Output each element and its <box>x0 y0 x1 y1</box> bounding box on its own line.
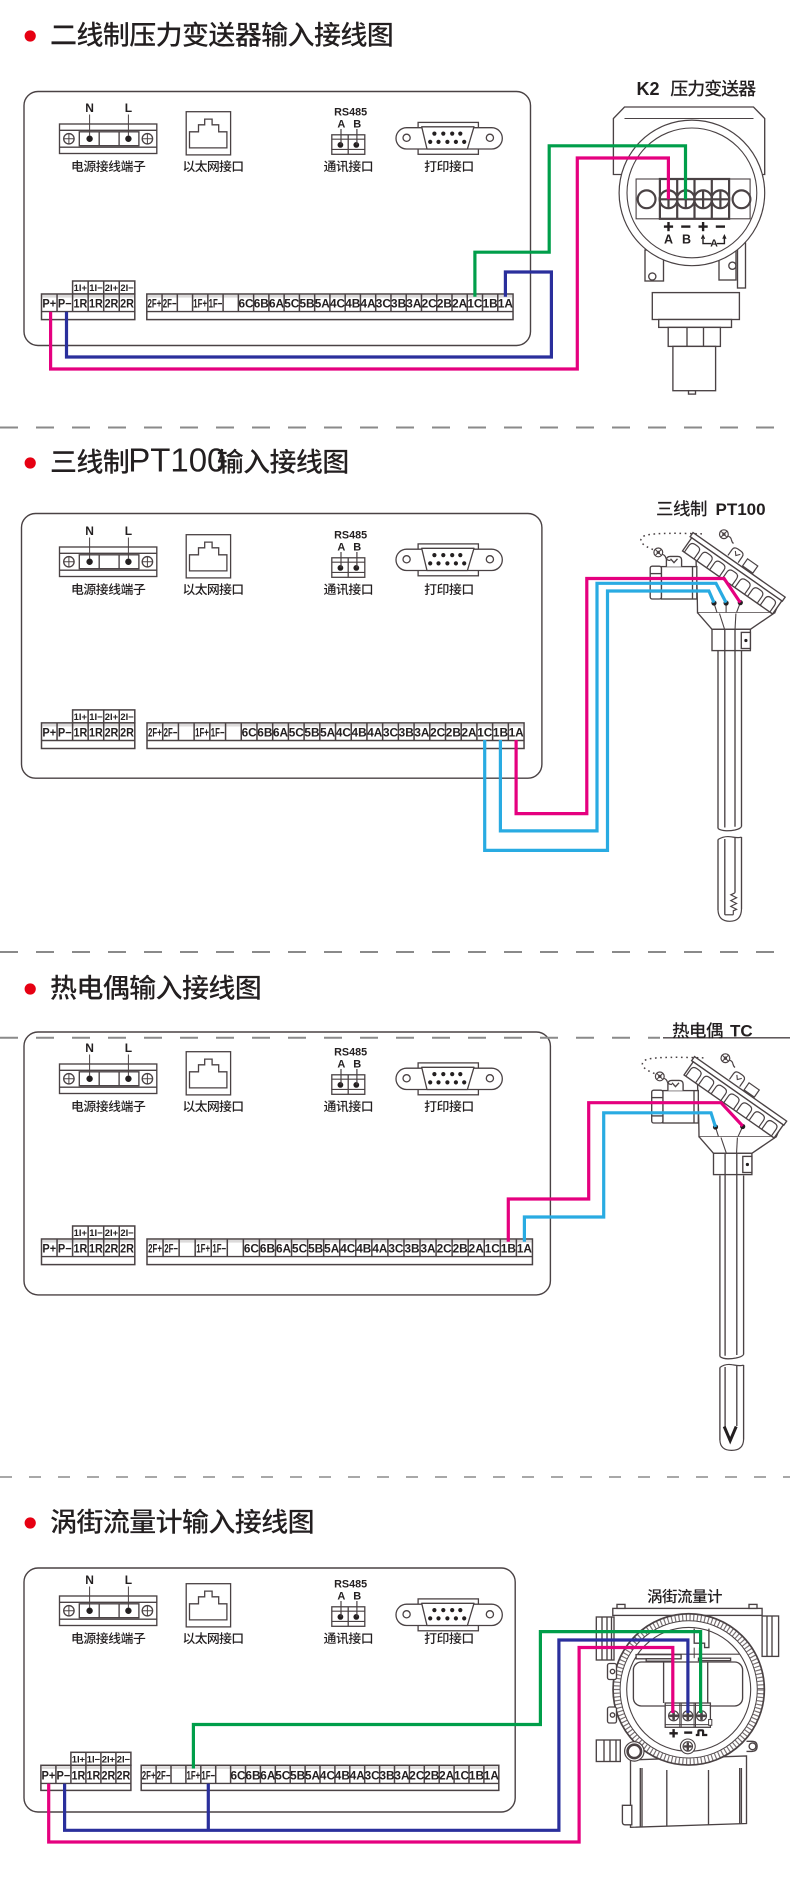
svg-text:2F−: 2F− <box>164 726 178 740</box>
svg-text:1I+: 1I+ <box>74 1228 88 1239</box>
svg-text:TC: TC <box>730 1022 753 1041</box>
svg-text:2I+: 2I+ <box>102 1754 116 1765</box>
svg-text:6A: 6A <box>276 1242 292 1256</box>
svg-text:2F−: 2F− <box>163 297 177 311</box>
svg-text:1B: 1B <box>493 726 508 740</box>
svg-text:1I−: 1I− <box>89 712 103 723</box>
svg-text:2I−: 2I− <box>120 283 134 294</box>
svg-text:1A: 1A <box>509 726 525 740</box>
svg-text:1I−: 1I− <box>89 1228 103 1239</box>
svg-text:2F+: 2F+ <box>148 726 162 740</box>
svg-text:2I+: 2I+ <box>105 1228 119 1239</box>
svg-text:2R: 2R <box>120 1242 134 1256</box>
svg-text:2B: 2B <box>437 297 452 311</box>
svg-text:N: N <box>85 1041 94 1055</box>
svg-text:5A: 5A <box>315 297 331 311</box>
svg-text:A: A <box>337 542 345 554</box>
svg-text:N: N <box>85 1573 94 1587</box>
svg-text:2R: 2R <box>120 726 134 740</box>
svg-text:B: B <box>353 1591 361 1603</box>
svg-text:2R: 2R <box>120 297 134 311</box>
svg-text:4A: 4A <box>361 297 377 311</box>
svg-text:6A: 6A <box>269 297 285 311</box>
svg-text:2R: 2R <box>117 1768 131 1782</box>
svg-text:2F+: 2F+ <box>142 1768 156 1782</box>
svg-text:4C: 4C <box>340 1242 356 1256</box>
svg-text:2R: 2R <box>105 726 119 740</box>
svg-text:1B: 1B <box>469 1768 484 1782</box>
svg-text:P−: P− <box>58 297 72 311</box>
svg-text:PT100: PT100 <box>716 500 766 519</box>
svg-text:1A: 1A <box>517 1242 533 1256</box>
svg-text:2F−: 2F− <box>164 1242 178 1256</box>
svg-text:4B: 4B <box>352 726 367 740</box>
svg-text:1R: 1R <box>87 1768 101 1782</box>
svg-text:1F+: 1F+ <box>186 1768 200 1782</box>
svg-text:1R: 1R <box>89 726 103 740</box>
svg-text:RS485: RS485 <box>334 530 367 542</box>
svg-text:6B: 6B <box>245 1768 260 1782</box>
svg-text:1C: 1C <box>467 297 483 311</box>
svg-text:A: A <box>337 1059 345 1071</box>
svg-text:3B: 3B <box>391 297 406 311</box>
svg-text:L: L <box>125 101 132 115</box>
svg-text:1R: 1R <box>73 1242 87 1256</box>
svg-text:4C: 4C <box>320 1768 336 1782</box>
svg-text:P−: P− <box>57 1768 71 1782</box>
svg-text:1F−: 1F− <box>212 1242 226 1256</box>
svg-text:3A: 3A <box>421 1242 437 1256</box>
svg-text:1B: 1B <box>501 1242 516 1256</box>
svg-text:2C: 2C <box>430 726 446 740</box>
svg-text:5B: 5B <box>308 1242 323 1256</box>
svg-text:P+: P+ <box>42 1768 56 1782</box>
svg-text:2I+: 2I+ <box>105 283 119 294</box>
svg-text:2A: 2A <box>452 297 468 311</box>
svg-text:1R: 1R <box>89 1242 103 1256</box>
svg-text:B: B <box>353 542 361 554</box>
svg-text:N: N <box>85 524 94 538</box>
svg-text:2C: 2C <box>437 1242 453 1256</box>
svg-text:5B: 5B <box>290 1768 305 1782</box>
svg-text:3C: 3C <box>383 726 399 740</box>
svg-text:3C: 3C <box>388 1242 404 1256</box>
svg-text:1F−: 1F− <box>201 1768 215 1782</box>
svg-text:RS485: RS485 <box>334 107 367 119</box>
svg-text:PT100: PT100 <box>128 442 225 479</box>
svg-text:1F−: 1F− <box>209 297 223 311</box>
svg-text:N: N <box>85 101 94 115</box>
svg-text:2C: 2C <box>409 1768 425 1782</box>
svg-text:1R: 1R <box>72 1768 86 1782</box>
svg-text:3C: 3C <box>376 297 392 311</box>
svg-text:3B: 3B <box>380 1768 395 1782</box>
svg-text:2I−: 2I− <box>120 1228 134 1239</box>
svg-text:2F+: 2F+ <box>148 297 162 311</box>
svg-text:1A: 1A <box>498 297 514 311</box>
svg-text:5A: 5A <box>305 1768 321 1782</box>
svg-text:P+: P+ <box>42 297 56 311</box>
svg-text:K2: K2 <box>637 79 660 99</box>
svg-text:1B: 1B <box>483 297 498 311</box>
svg-text:2I−: 2I− <box>117 1754 131 1765</box>
svg-text:3C: 3C <box>365 1768 381 1782</box>
svg-text:1F+: 1F+ <box>193 297 207 311</box>
svg-text:RS485: RS485 <box>334 1579 367 1591</box>
svg-text:6B: 6B <box>254 297 269 311</box>
svg-text:2F+: 2F+ <box>148 1242 162 1256</box>
svg-text:5C: 5C <box>275 1768 291 1782</box>
svg-text:RS485: RS485 <box>334 1047 367 1059</box>
svg-text:4A: 4A <box>367 726 383 740</box>
svg-text:P−: P− <box>58 726 72 740</box>
svg-text:4B: 4B <box>335 1768 350 1782</box>
svg-text:1I−: 1I− <box>89 283 103 294</box>
svg-text:1F−: 1F− <box>211 726 225 740</box>
svg-text:B: B <box>353 1059 361 1071</box>
svg-text:2R: 2R <box>105 297 119 311</box>
svg-text:2R: 2R <box>102 1768 116 1782</box>
svg-text:5C: 5C <box>284 297 300 311</box>
svg-text:5A: 5A <box>320 726 336 740</box>
svg-text:2A: 2A <box>462 726 478 740</box>
svg-text:6C: 6C <box>244 1242 260 1256</box>
svg-text:3A: 3A <box>406 297 422 311</box>
svg-text:1F+: 1F+ <box>196 1242 210 1256</box>
svg-text:1F+: 1F+ <box>195 726 209 740</box>
svg-text:5B: 5B <box>299 297 314 311</box>
svg-text:5B: 5B <box>304 726 319 740</box>
svg-text:1C: 1C <box>454 1768 470 1782</box>
svg-text:1R: 1R <box>73 297 87 311</box>
svg-text:1I+: 1I+ <box>72 1754 86 1765</box>
svg-text:A: A <box>664 233 673 247</box>
svg-text:2I−: 2I− <box>120 712 134 723</box>
svg-text:2B: 2B <box>446 726 461 740</box>
svg-text:2B: 2B <box>453 1242 468 1256</box>
svg-text:A: A <box>337 119 345 131</box>
svg-text:B: B <box>682 233 691 247</box>
svg-text:5C: 5C <box>289 726 305 740</box>
svg-text:L: L <box>125 1573 132 1587</box>
svg-text:P−: P− <box>58 1242 72 1256</box>
svg-text:A: A <box>710 238 718 250</box>
svg-text:2A: 2A <box>469 1242 485 1256</box>
svg-text:5A: 5A <box>324 1242 340 1256</box>
svg-text:3B: 3B <box>399 726 414 740</box>
svg-text:4B: 4B <box>345 297 360 311</box>
svg-text:1I−: 1I− <box>87 1754 101 1765</box>
svg-text:2I+: 2I+ <box>105 712 119 723</box>
svg-text:4C: 4C <box>330 297 346 311</box>
svg-text:6A: 6A <box>273 726 289 740</box>
svg-text:2A: 2A <box>439 1768 455 1782</box>
svg-text:2C: 2C <box>422 297 438 311</box>
svg-text:L: L <box>125 1041 132 1055</box>
svg-text:4A: 4A <box>350 1768 366 1782</box>
svg-text:A: A <box>337 1591 345 1603</box>
svg-text:L: L <box>125 524 132 538</box>
svg-text:4C: 4C <box>336 726 352 740</box>
svg-text:1C: 1C <box>477 726 493 740</box>
svg-text:1A: 1A <box>484 1768 500 1782</box>
svg-text:3B: 3B <box>404 1242 419 1256</box>
svg-text:6A: 6A <box>260 1768 276 1782</box>
svg-text:B: B <box>353 119 361 131</box>
svg-text:1R: 1R <box>73 726 87 740</box>
svg-text:6C: 6C <box>238 297 254 311</box>
svg-text:6C: 6C <box>231 1768 247 1782</box>
svg-text:2F−: 2F− <box>157 1768 171 1782</box>
svg-text:1I+: 1I+ <box>74 712 88 723</box>
svg-text:1I+: 1I+ <box>74 283 88 294</box>
svg-text:P+: P+ <box>42 726 56 740</box>
svg-text:6B: 6B <box>260 1242 275 1256</box>
svg-text:4B: 4B <box>356 1242 371 1256</box>
svg-text:4A: 4A <box>372 1242 388 1256</box>
svg-text:3A: 3A <box>394 1768 410 1782</box>
svg-text:2B: 2B <box>424 1768 439 1782</box>
svg-text:1C: 1C <box>485 1242 501 1256</box>
svg-text:6B: 6B <box>257 726 272 740</box>
svg-text:1R: 1R <box>89 297 103 311</box>
svg-text:6C: 6C <box>242 726 258 740</box>
svg-text:P+: P+ <box>42 1242 56 1256</box>
svg-text:3A: 3A <box>414 726 430 740</box>
svg-text:2R: 2R <box>105 1242 119 1256</box>
svg-text:5C: 5C <box>292 1242 308 1256</box>
